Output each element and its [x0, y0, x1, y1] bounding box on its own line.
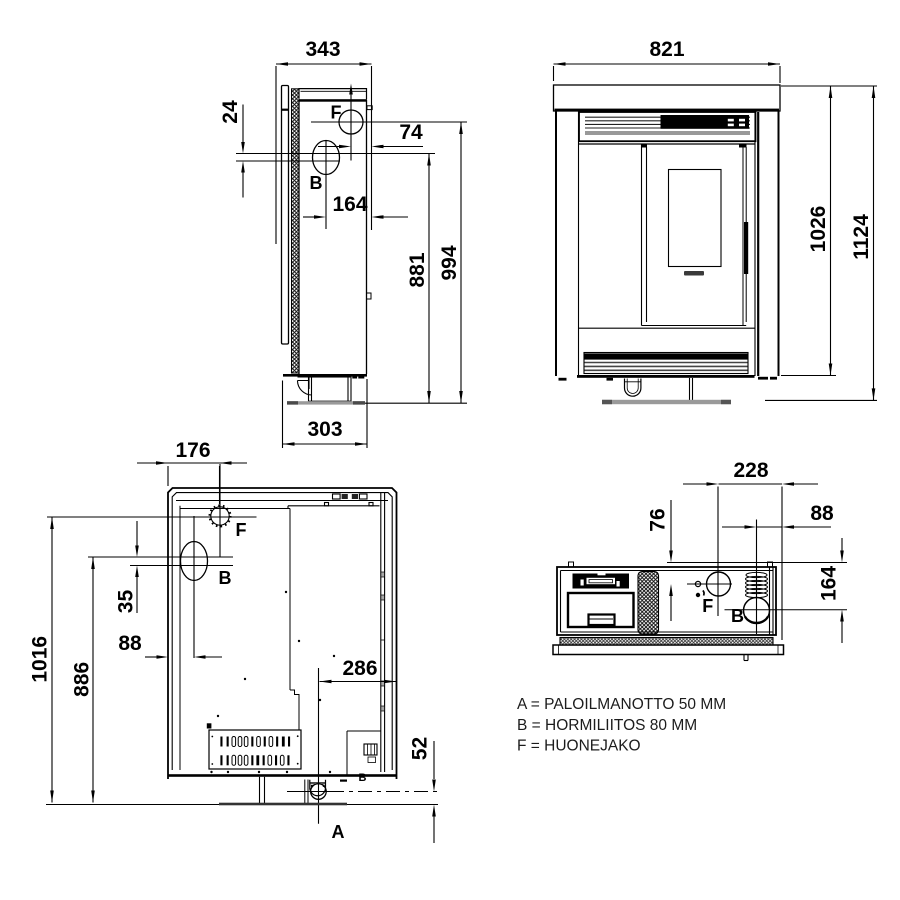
svg-text:A: A	[332, 822, 345, 842]
svg-text:881: 881	[406, 252, 429, 287]
svg-text:886: 886	[71, 662, 94, 697]
svg-text:164: 164	[818, 566, 841, 601]
svg-text:821: 821	[649, 38, 684, 61]
svg-text:B: B	[310, 173, 323, 193]
svg-text:35: 35	[115, 590, 138, 614]
svg-text:74: 74	[399, 121, 423, 144]
svg-text:176: 176	[175, 439, 210, 462]
svg-text:B = HORMILIITOS 80 MM: B = HORMILIITOS 80 MM	[517, 717, 697, 734]
svg-text:1016: 1016	[28, 636, 51, 683]
svg-text:F = HUONEJAKO: F = HUONEJAKO	[517, 738, 641, 755]
svg-text:B: B	[731, 606, 744, 626]
svg-text:343: 343	[305, 38, 340, 61]
svg-text:A = PALOILMANOTTO 50 MM: A = PALOILMANOTTO 50 MM	[517, 696, 726, 713]
svg-text:994: 994	[438, 245, 461, 280]
svg-text:F: F	[331, 103, 342, 123]
svg-text:F: F	[702, 596, 713, 616]
svg-text:52: 52	[409, 737, 432, 760]
svg-text:88: 88	[118, 632, 142, 655]
svg-text:88: 88	[810, 502, 834, 525]
svg-text:1026: 1026	[807, 206, 830, 253]
svg-text:B: B	[359, 772, 367, 784]
svg-text:24: 24	[219, 100, 242, 124]
svg-text:286: 286	[342, 657, 377, 680]
svg-text:303: 303	[307, 418, 342, 441]
svg-text:164: 164	[332, 193, 367, 216]
svg-text:76: 76	[647, 508, 670, 531]
svg-text:B: B	[219, 568, 232, 588]
svg-text:228: 228	[733, 459, 768, 482]
svg-text:1124: 1124	[850, 214, 873, 260]
svg-text:F: F	[236, 520, 247, 540]
